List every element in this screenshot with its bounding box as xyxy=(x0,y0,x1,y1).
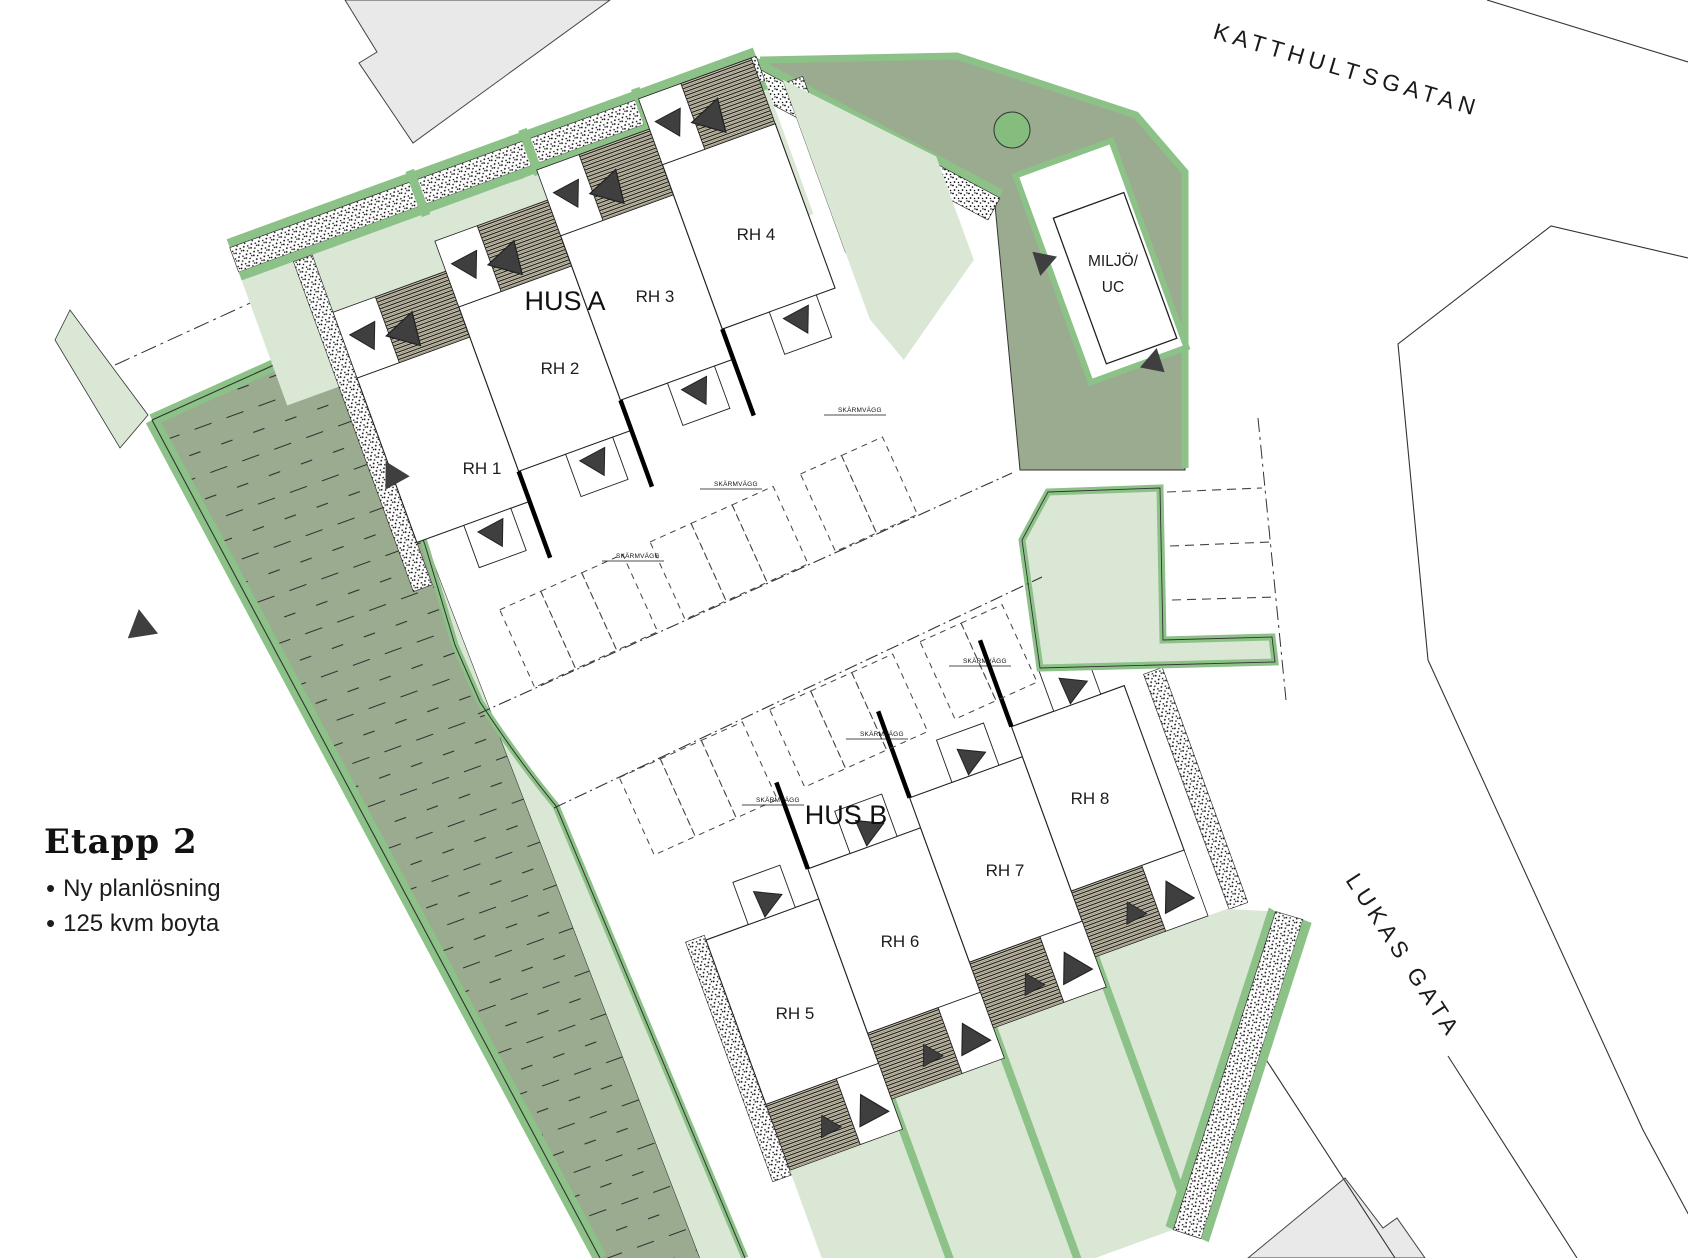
rh4-label: RH 4 xyxy=(737,225,776,244)
phase-bullet: Ny planlösning xyxy=(46,872,221,903)
screen-wall-label: SKÄRMVÄGG xyxy=(860,730,904,738)
neighbor-building-southeast xyxy=(1248,1178,1425,1258)
katthultsgatan-north-edge xyxy=(1487,0,1688,62)
hus-a-label: HUS A xyxy=(524,286,605,316)
street-label-katthultsgatan: KATTHULTSGATAN xyxy=(1211,18,1484,121)
screen-wall-label: SKÄRMVÄGG xyxy=(714,480,758,488)
phase-bullet-list: Ny planlösning 125 kvm boyta xyxy=(46,872,221,938)
site-entry-arrow-icon xyxy=(118,607,158,648)
screen-wall-label: SKÄRMVÄGG xyxy=(616,552,660,560)
utility-label-line2: UC xyxy=(1102,279,1124,296)
screen-wall-label: SKÄRMVÄGG xyxy=(756,796,800,804)
tree-symbol xyxy=(994,112,1030,148)
lukas-gata-inner-edge xyxy=(1448,1056,1577,1258)
garden-area-east xyxy=(1022,488,1275,668)
phase-bullet: 125 kvm boyta xyxy=(46,907,221,938)
screen-wall-label: SKÄRMVÄGG xyxy=(838,406,882,414)
rh7-label: RH 7 xyxy=(986,861,1025,880)
parking-row-north xyxy=(500,437,918,687)
street-label-lukas-gata: LUKAS GATA xyxy=(1341,869,1467,1043)
site-plan-canvas: KATTHULTSGATAN LUKAS GATA HUS A RH 1 RH … xyxy=(0,0,1688,1258)
hus-b-block xyxy=(623,567,1402,1258)
rh5-label: RH 5 xyxy=(776,1004,815,1023)
parking-stalls-east xyxy=(1167,488,1277,600)
rh1-label: RH 1 xyxy=(463,459,502,478)
phase-title: Etapp 2 xyxy=(44,822,221,862)
screen-wall-label: SKÄRMVÄGG xyxy=(963,657,1007,665)
rh2-label: RH 2 xyxy=(541,359,580,378)
phase-legend: Etapp 2 Ny planlösning 125 kvm boyta xyxy=(44,822,221,942)
site-plan-drawing: KATTHULTSGATAN LUKAS GATA HUS A RH 1 RH … xyxy=(0,0,1688,1258)
hus-b-label: HUS B xyxy=(805,800,888,830)
street-boundary-lines xyxy=(1265,0,1688,1258)
utility-label-line1: MILJÖ/ xyxy=(1088,252,1139,270)
rh3-label: RH 3 xyxy=(636,287,675,306)
east-property-boundary xyxy=(1398,226,1688,1258)
rh8-label: RH 8 xyxy=(1071,789,1110,808)
rh6-label: RH 6 xyxy=(881,932,920,951)
